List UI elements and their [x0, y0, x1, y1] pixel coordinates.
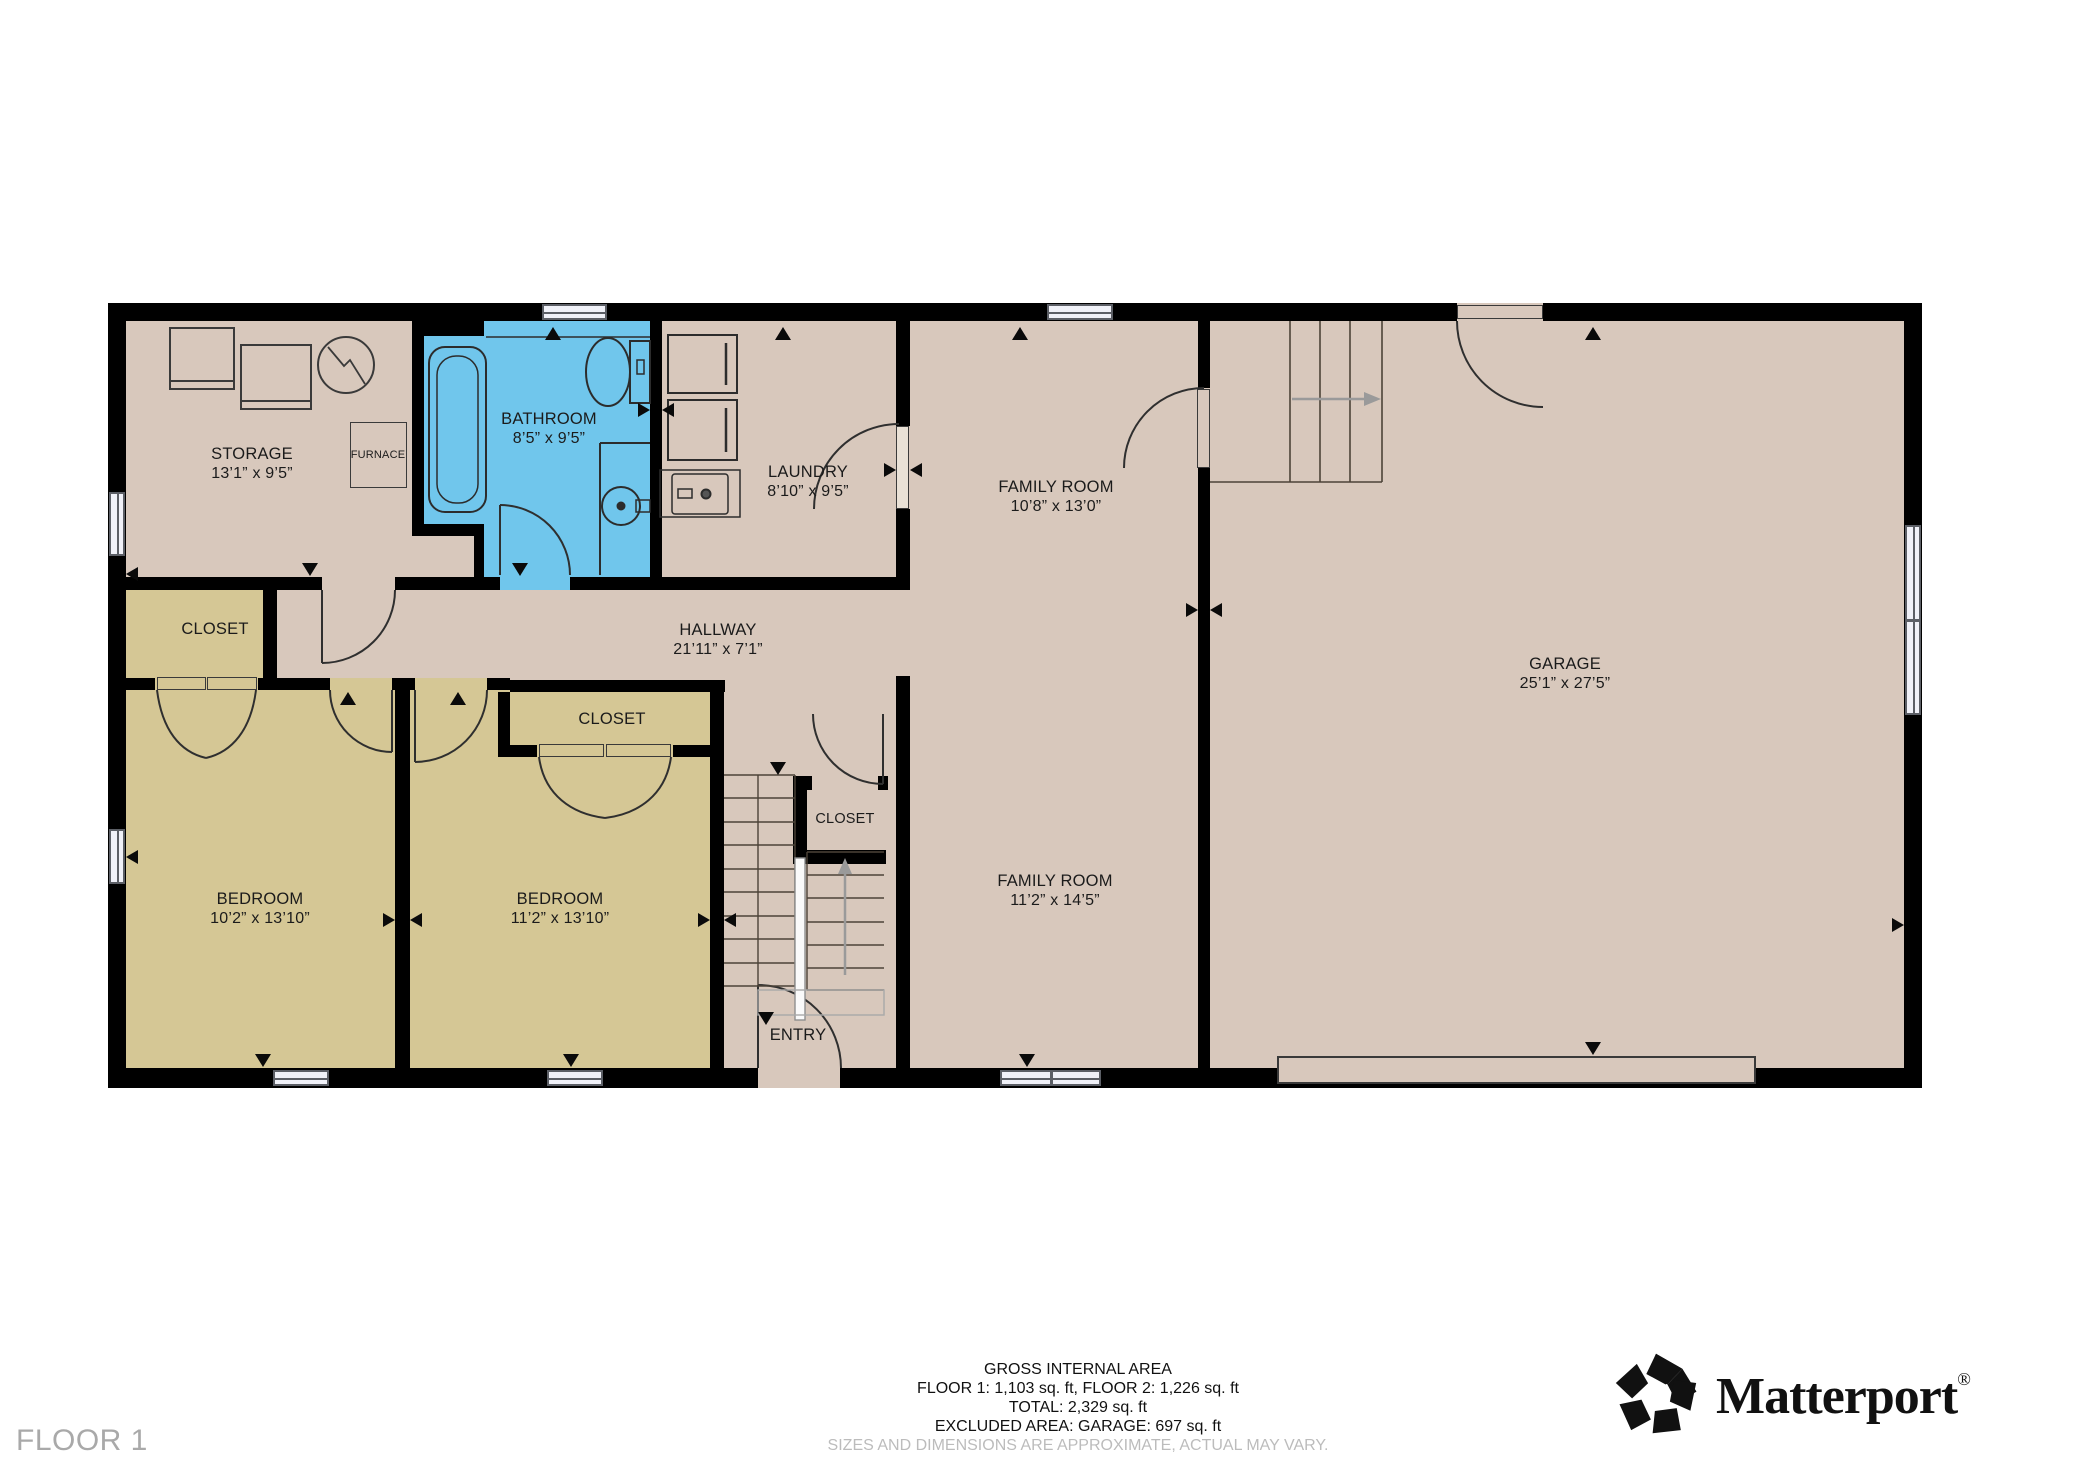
room-label-closet-center: CLOSET [815, 811, 874, 829]
room-name: STORAGE [211, 445, 293, 463]
room-dims: 11’2” x 13’10” [511, 909, 610, 929]
bathroom-tub-alcove-floor [424, 336, 484, 524]
room-label-entry: ENTRY [770, 1025, 827, 1045]
room-dims: 25’1” x 27’5” [1520, 674, 1611, 694]
window [1047, 304, 1113, 320]
wall [570, 577, 910, 590]
room-label-family-room-lower: FAMILY ROOM 11’2” x 14’5” [997, 871, 1112, 911]
room-name: FAMILY ROOM [997, 872, 1112, 890]
wall [896, 321, 910, 426]
area-summary: GROSS INTERNAL AREA FLOOR 1: 1,103 sq. f… [828, 1360, 1329, 1455]
room-name: HALLWAY [679, 621, 756, 639]
bifold-door-leaf [539, 744, 604, 757]
wall [412, 321, 484, 336]
wall [474, 536, 484, 577]
summary-title: GROSS INTERNAL AREA [828, 1360, 1329, 1379]
room-dims: 8’5” x 9’5” [501, 429, 597, 449]
floor-label: FLOOR 1 [16, 1424, 148, 1458]
wall [896, 676, 910, 1068]
wall [392, 678, 415, 690]
room-dims: 8’10” x 9’5” [767, 482, 849, 502]
garage-door [1277, 1056, 1756, 1084]
room-name: CLOSET [815, 811, 874, 827]
brand-name: Matterport [1716, 1368, 1957, 1425]
door-opening [500, 577, 570, 590]
room-label-laundry: LAUNDRY 8’10” x 9’5” [767, 462, 849, 502]
wall [896, 509, 910, 577]
room-name: BEDROOM [217, 890, 304, 908]
window [1000, 1070, 1101, 1086]
bathroom-floor [484, 321, 650, 577]
wall [395, 690, 410, 1068]
room-label-furnace: FURNACE [351, 449, 406, 461]
wall [108, 303, 126, 1088]
room-dims: 10’2” x 13’10” [210, 909, 310, 929]
door-opening [415, 678, 487, 690]
door-opening [330, 678, 392, 690]
wall [673, 745, 712, 757]
window [109, 492, 125, 556]
door-leaf [896, 426, 909, 509]
summary-total: TOTAL: 2,329 sq. ft [828, 1398, 1329, 1417]
bedroom-left-floor [126, 690, 395, 1068]
wall [878, 776, 888, 790]
bifold-door-leaf [207, 677, 257, 690]
room-dims: 13’1” x 9’5” [211, 464, 293, 484]
registered-mark: ® [1957, 1369, 1970, 1389]
window [542, 304, 607, 320]
room-name: ENTRY [770, 1026, 827, 1044]
door-opening [758, 1068, 840, 1088]
window [1905, 525, 1921, 715]
door-leaf [1457, 305, 1543, 319]
room-label-garage: GARAGE 25’1” x 27’5” [1520, 654, 1611, 694]
door-leaf [1197, 389, 1210, 468]
wall [126, 678, 155, 690]
summary-floors: FLOOR 1: 1,103 sq. ft, FLOOR 2: 1,226 sq… [828, 1379, 1329, 1398]
matterport-pinwheel-icon [1612, 1352, 1700, 1440]
matterport-wordmark: Matterport® [1716, 1367, 1970, 1426]
wall [108, 303, 1922, 321]
room-name: BATHROOM [501, 410, 597, 428]
wall [510, 680, 725, 692]
room-label-hallway: HALLWAY 21’11” x 7’1” [673, 620, 762, 660]
wall [710, 690, 724, 1068]
wall [258, 678, 330, 690]
room-name: FURNACE [351, 449, 406, 461]
room-label-closet-left: CLOSET [181, 619, 248, 639]
wall [263, 590, 277, 678]
room-label-storage: STORAGE 13’1” x 9’5” [211, 444, 293, 484]
room-name: FAMILY ROOM [998, 478, 1113, 496]
room-label-family-room-upper: FAMILY ROOM 10’8” x 13’0” [998, 477, 1113, 517]
bifold-door-leaf [157, 677, 206, 690]
room-label-bedroom-right: BEDROOM 11’2” x 13’10” [511, 889, 610, 929]
wall [412, 336, 424, 536]
wall [500, 745, 537, 757]
window [273, 1070, 329, 1086]
wall [1198, 468, 1210, 1068]
summary-excluded: EXCLUDED AREA: GARAGE: 697 sq. ft [828, 1417, 1329, 1436]
room-label-bedroom-left: BEDROOM 10’2” x 13’10” [210, 889, 310, 929]
wall [1198, 321, 1210, 388]
wall [395, 577, 500, 590]
room-dims: 21’11” x 7’1” [673, 640, 762, 660]
window [547, 1070, 603, 1086]
wall [650, 321, 662, 577]
room-name: CLOSET [578, 710, 645, 728]
floorplan-canvas: STORAGE 13’1” x 9’5” FURNACE BATHROOM 8’… [0, 0, 2080, 1470]
room-label-closet-bedroom2: CLOSET [578, 709, 645, 729]
room-name: BEDROOM [517, 890, 604, 908]
room-name: LAUNDRY [768, 463, 848, 481]
door-opening [322, 577, 395, 590]
matterport-branding: Matterport® [1612, 1352, 1970, 1440]
room-dims: 11’2” x 14’5” [997, 891, 1112, 911]
wall [793, 776, 812, 790]
room-name: GARAGE [1529, 655, 1601, 673]
room-label-bathroom: BATHROOM 8’5” x 9’5” [501, 409, 597, 449]
wall [793, 850, 886, 864]
summary-disclaimer: SIZES AND DIMENSIONS ARE APPROXIMATE, AC… [828, 1436, 1329, 1455]
room-dims: 10’8” x 13’0” [998, 497, 1113, 517]
bifold-door-leaf [606, 744, 671, 757]
wall [126, 577, 322, 590]
window [109, 829, 125, 884]
room-name: CLOSET [181, 620, 248, 638]
wall [412, 524, 484, 536]
wall [487, 678, 510, 690]
